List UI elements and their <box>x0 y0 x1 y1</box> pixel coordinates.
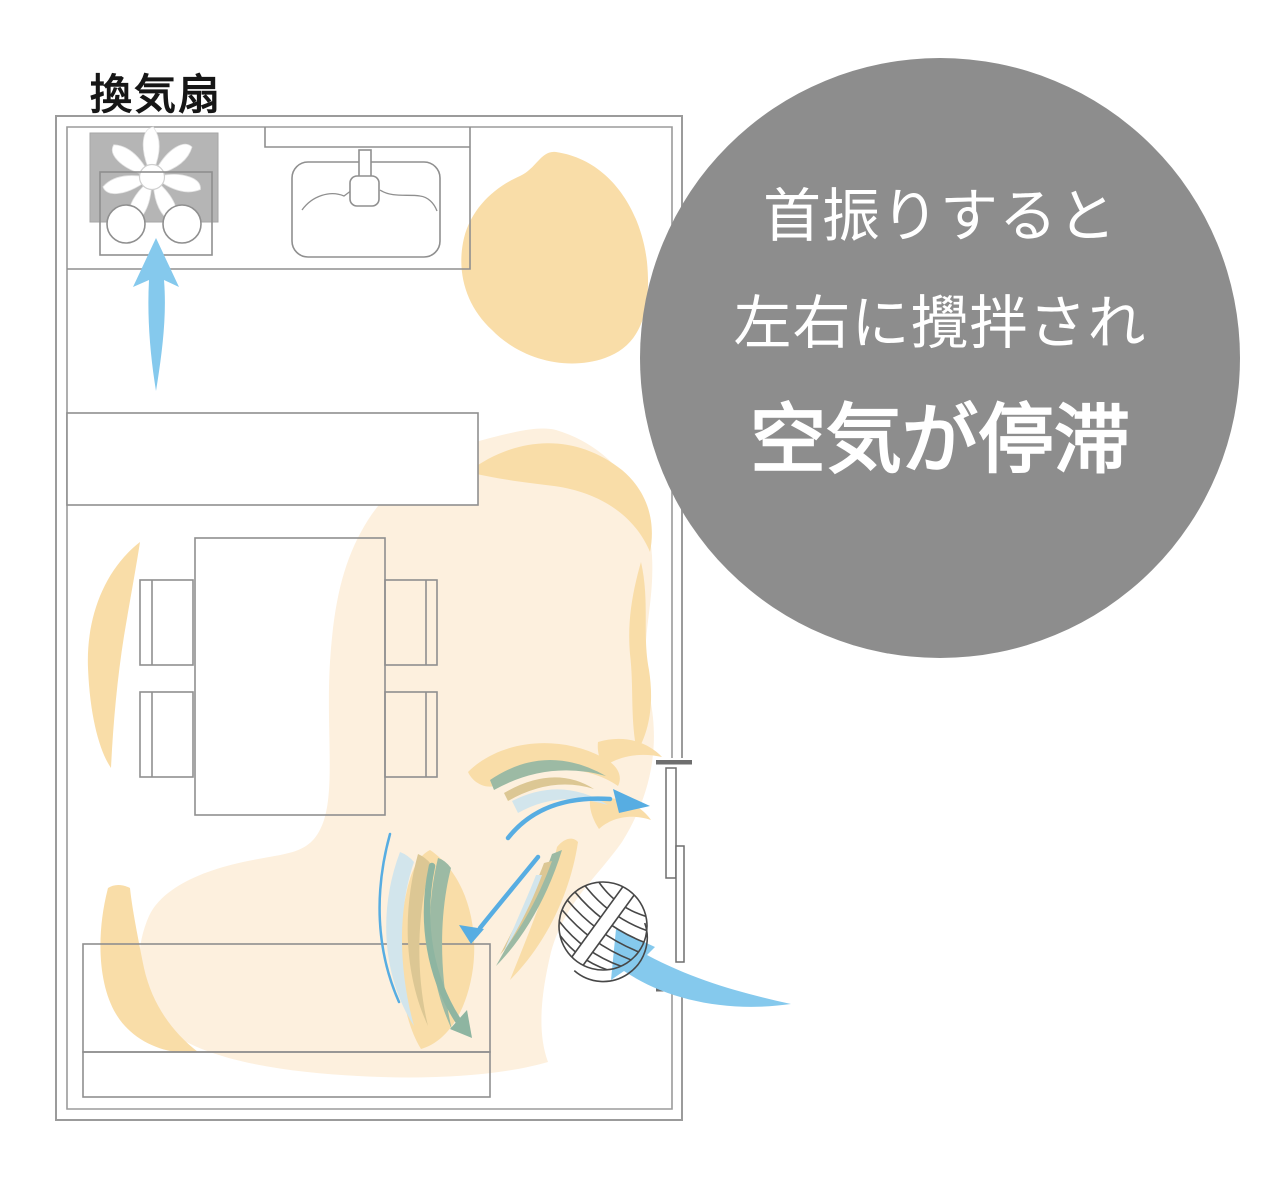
exhaust-up-arrow <box>133 238 179 391</box>
kitchen-counter-step <box>265 127 470 147</box>
stove-burner-left <box>107 205 145 243</box>
door-panel-2 <box>676 846 684 962</box>
chair-left-top <box>140 580 193 665</box>
callout-bubble: 首振りすると 左右に攪拌され 空気が停滞 <box>640 58 1240 658</box>
callout-line-2: 左右に攪拌され <box>640 295 1240 353</box>
faucet-handle <box>350 176 379 206</box>
stagnant-air-blob-near-sink <box>461 152 648 364</box>
floor-plan-diagram: 換気扇 首振りすると 左右に攪拌され 空気が停滞 <box>0 0 1280 1180</box>
callout-line-1: 首振りすると <box>640 188 1240 246</box>
ventilation-fan-label: 換気扇 <box>90 74 222 116</box>
ventilation-fan-unit <box>90 125 218 224</box>
intake-arrow-from-door <box>611 929 791 1007</box>
chair-left-bottom <box>140 692 193 777</box>
stove-burner-right <box>163 205 201 243</box>
sliding-door <box>656 760 692 992</box>
door-panel-1 <box>666 768 676 878</box>
door-jamb-top <box>656 760 692 765</box>
fan-hub <box>140 165 165 190</box>
stagnant-air-blob-left <box>88 542 140 768</box>
cabinet <box>67 413 478 505</box>
callout-line-3: 空気が停滞 <box>640 403 1240 479</box>
